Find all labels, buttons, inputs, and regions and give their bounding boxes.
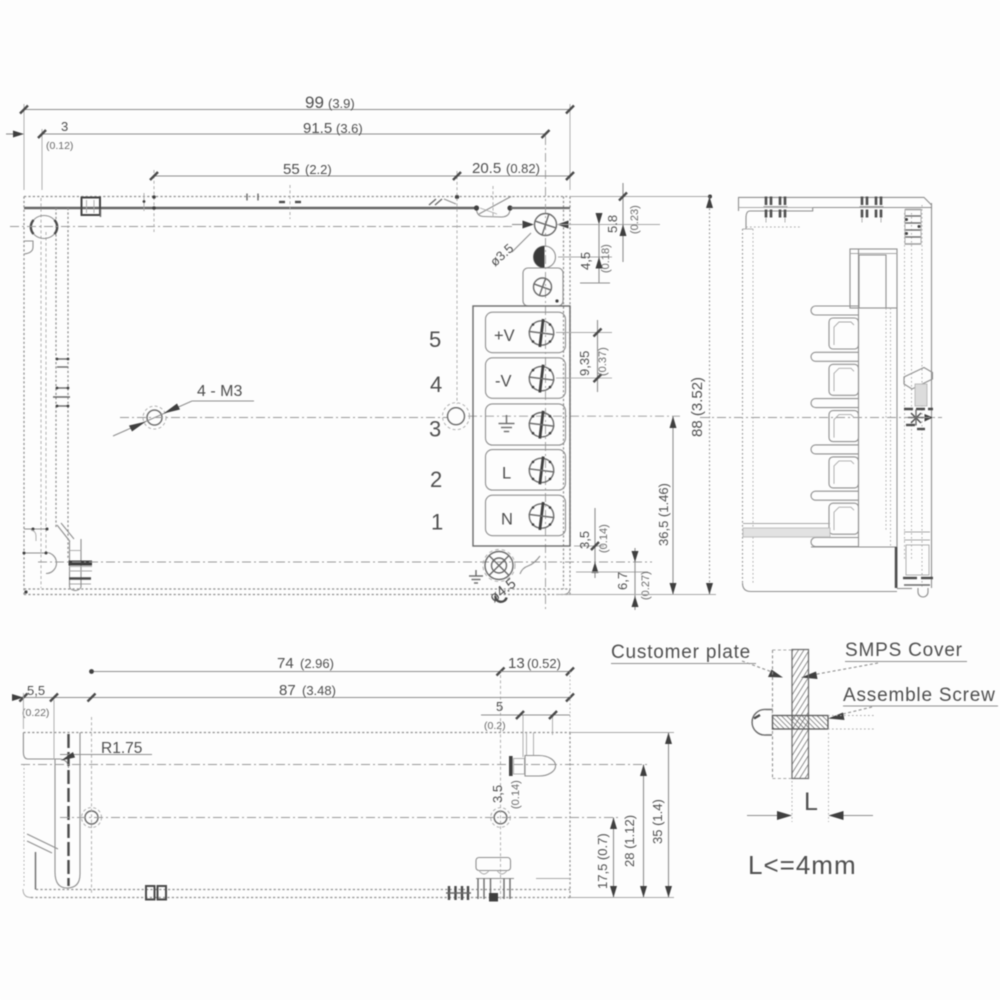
svg-text:5: 5 bbox=[429, 327, 441, 352]
svg-text:5.8: 5.8 bbox=[605, 215, 620, 233]
svg-text:(0.37): (0.37) bbox=[597, 347, 609, 376]
svg-text:L<=4mm: L<=4mm bbox=[748, 850, 857, 880]
svg-text:(3.48): (3.48) bbox=[302, 683, 336, 698]
svg-text:N: N bbox=[501, 511, 513, 529]
svg-text:(0.22): (0.22) bbox=[22, 707, 49, 719]
svg-text:L: L bbox=[804, 788, 818, 816]
svg-text:4 - M3: 4 - M3 bbox=[197, 383, 242, 400]
svg-text:87: 87 bbox=[279, 682, 296, 699]
svg-text:+V: +V bbox=[494, 327, 515, 345]
svg-text:9,35: 9,35 bbox=[577, 351, 592, 376]
svg-text:99: 99 bbox=[305, 93, 324, 112]
svg-text:4,5: 4,5 bbox=[578, 252, 593, 270]
svg-text:35 (1.4): 35 (1.4) bbox=[650, 799, 665, 844]
svg-text:(0.12): (0.12) bbox=[46, 140, 73, 152]
svg-text:(0.23): (0.23) bbox=[629, 205, 641, 234]
svg-text:91.5: 91.5 bbox=[303, 120, 332, 137]
svg-text:4: 4 bbox=[430, 372, 442, 397]
svg-text:(3.9): (3.9) bbox=[328, 96, 355, 111]
svg-text:3,5: 3,5 bbox=[577, 531, 592, 549]
svg-text:SMPS Cover: SMPS Cover bbox=[845, 640, 963, 661]
svg-text:3: 3 bbox=[429, 417, 441, 442]
svg-text:5,5: 5,5 bbox=[27, 683, 45, 698]
svg-text:-V: -V bbox=[495, 373, 512, 391]
svg-text:3: 3 bbox=[61, 119, 68, 134]
svg-text:(0.52): (0.52) bbox=[527, 656, 561, 671]
svg-text:5: 5 bbox=[496, 699, 503, 714]
svg-text:Customer plate: Customer plate bbox=[611, 642, 751, 663]
svg-text:88 (3.52): 88 (3.52) bbox=[689, 377, 706, 437]
svg-text:L: L bbox=[502, 465, 511, 483]
svg-text:55: 55 bbox=[283, 161, 300, 178]
svg-text:(3.6): (3.6) bbox=[336, 121, 363, 136]
svg-text:17,5 (0.7): 17,5 (0.7) bbox=[595, 833, 610, 889]
svg-text:6,7: 6,7 bbox=[615, 572, 630, 590]
svg-text:3,5: 3,5 bbox=[490, 785, 505, 803]
svg-text:74: 74 bbox=[277, 655, 294, 672]
svg-text:20.5: 20.5 bbox=[472, 160, 501, 177]
svg-text:(2.2): (2.2) bbox=[305, 162, 332, 177]
svg-text:(0.82): (0.82) bbox=[506, 161, 540, 176]
svg-text:(2.96): (2.96) bbox=[300, 656, 334, 671]
svg-text:36,5 (1.46): 36,5 (1.46) bbox=[656, 483, 671, 546]
svg-text:(0.2): (0.2) bbox=[484, 720, 506, 732]
svg-text:Assemble Screw: Assemble Screw bbox=[843, 685, 996, 706]
svg-text:13: 13 bbox=[508, 655, 525, 672]
svg-text:1: 1 bbox=[431, 510, 443, 535]
svg-text:(0.27): (0.27) bbox=[640, 571, 652, 600]
svg-text:28 (1.12): 28 (1.12) bbox=[622, 815, 637, 867]
svg-text:(0.14): (0.14) bbox=[510, 780, 522, 809]
svg-text:(0.18): (0.18) bbox=[600, 244, 612, 273]
svg-text:(0.14): (0.14) bbox=[598, 524, 610, 553]
svg-text:2: 2 bbox=[430, 467, 442, 492]
